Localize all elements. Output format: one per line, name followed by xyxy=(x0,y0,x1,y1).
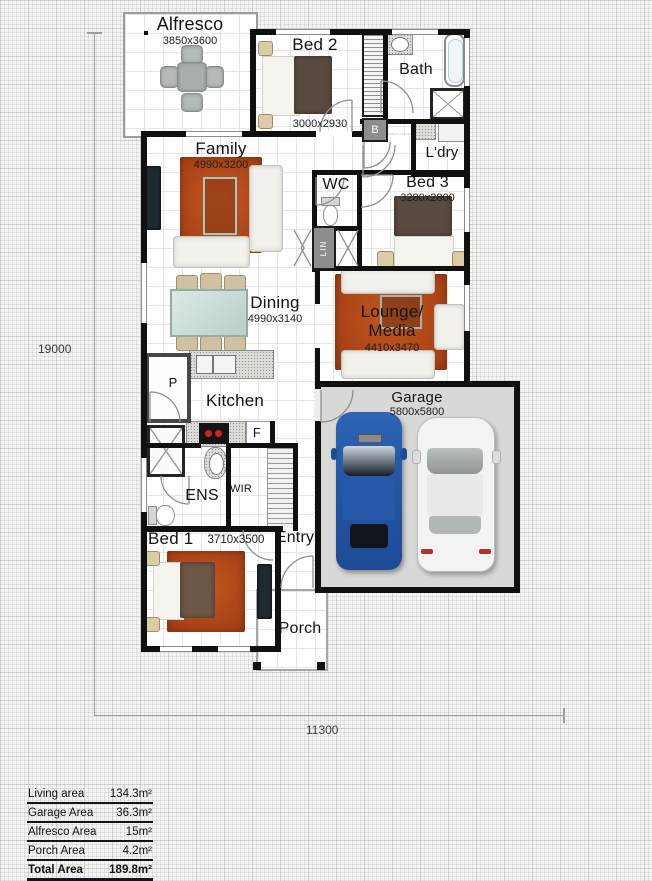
car-white xyxy=(417,417,495,572)
dimension-cap xyxy=(563,708,565,723)
wall xyxy=(315,587,520,593)
area-table-row: Garage Area 36.3m² xyxy=(27,804,153,823)
car-white-taillight xyxy=(479,549,491,554)
wc-label: WC xyxy=(315,177,357,194)
family-sofa xyxy=(249,165,283,252)
porch-post xyxy=(317,662,325,670)
linen-label: LIN xyxy=(319,240,328,255)
bed3-dims: 3280x2800 xyxy=(380,192,475,204)
garage-dims: 5800x5800 xyxy=(355,406,479,418)
window xyxy=(464,285,470,331)
ens-toilet xyxy=(156,505,175,526)
bath-shower xyxy=(430,88,466,120)
dimension-cap xyxy=(87,32,102,34)
area-row-label: Living area xyxy=(28,788,84,800)
broom-cupboard: B xyxy=(362,118,388,142)
cooktop-burner xyxy=(205,430,212,437)
bed3-label: Bed 3 xyxy=(380,175,475,192)
bath-label: Bath xyxy=(385,62,447,79)
wc-toilet xyxy=(323,205,338,226)
car-white-rear-window xyxy=(429,516,481,534)
car-blue-plate xyxy=(358,434,382,443)
wall xyxy=(312,170,362,175)
area-row-label: Garage Area xyxy=(28,807,93,819)
bath-basin xyxy=(391,37,409,52)
wall xyxy=(141,443,201,448)
bed2-label: Bed 2 xyxy=(270,36,360,54)
area-row-value: 15m² xyxy=(126,826,152,838)
car-white-mirror xyxy=(412,450,421,464)
car-blue-windshield xyxy=(343,446,395,476)
lounge-sofa xyxy=(341,350,435,379)
ens-basin xyxy=(209,453,224,475)
broom-cupboard-label: B xyxy=(371,124,378,136)
bed3-side-table xyxy=(377,251,394,267)
dining-label: Dining xyxy=(230,294,320,312)
alfresco-chair xyxy=(205,66,224,88)
ldry-label: L'dry xyxy=(414,145,470,161)
car-blue-engine-cover xyxy=(350,524,388,548)
cooktop xyxy=(199,423,229,444)
car-white-taillight xyxy=(421,549,433,554)
alfresco-dims: 3850x3600 xyxy=(135,35,245,47)
bed2-blanket xyxy=(294,56,332,114)
dining-chair xyxy=(200,273,222,290)
family-tv-unit xyxy=(145,166,161,230)
bed1-label: Bed 1 xyxy=(148,530,204,548)
wall xyxy=(514,381,520,593)
site-width-label: 11300 xyxy=(306,723,338,737)
area-table-total-row: Total Area 189.8m² xyxy=(27,861,153,881)
car-white-roof xyxy=(427,474,483,516)
kitchen-sink xyxy=(213,355,236,374)
pantry-label: P xyxy=(158,376,188,390)
alfresco-chair xyxy=(181,93,203,112)
entry-label: Entry xyxy=(270,530,320,547)
bed2-side-table xyxy=(258,114,273,129)
area-table-row: Porch Area 4.2m² xyxy=(27,842,153,861)
area-table-row: Alfresco Area 15m² xyxy=(27,823,153,842)
area-row-value: 189.8m² xyxy=(109,864,152,876)
wir-shelves xyxy=(267,448,293,528)
garage-label: Garage xyxy=(355,390,479,406)
wir-label: WIR xyxy=(216,484,266,496)
family-coffee-table xyxy=(203,177,237,235)
site-depth-label: 19000 xyxy=(38,342,71,356)
window xyxy=(464,38,470,86)
wall xyxy=(315,381,520,387)
alfresco-table xyxy=(177,62,207,92)
dimension-line-horizontal xyxy=(94,715,564,716)
car-white-mirror xyxy=(492,450,501,464)
lounge-sofa xyxy=(341,268,435,294)
door-opening xyxy=(315,389,321,421)
bed1-dims: 3710x3500 xyxy=(206,534,266,546)
window xyxy=(392,29,438,35)
fridge-label: F xyxy=(242,426,272,440)
washing-machine xyxy=(438,121,466,142)
lounge-label-line1: Lounge/ xyxy=(330,303,454,321)
car-blue xyxy=(336,412,402,570)
wall xyxy=(226,443,298,448)
door-opening xyxy=(316,131,352,137)
alfresco-label: Alfresco xyxy=(135,15,245,34)
area-row-value: 4.2m² xyxy=(123,845,152,857)
kitchen-label: Kitchen xyxy=(185,392,285,410)
bed2-dims: 3000x2930 xyxy=(275,118,365,130)
area-table-row: Living area 134.3m² xyxy=(27,785,153,804)
bed1-blanket xyxy=(180,562,215,618)
linen-cupboard: LIN xyxy=(312,226,336,270)
window xyxy=(160,646,192,652)
family-sofa xyxy=(173,236,250,268)
area-row-value: 36.3m² xyxy=(116,807,152,819)
car-blue-mirror xyxy=(331,448,337,460)
area-row-label: Alfresco Area xyxy=(28,826,96,838)
bathtub-inner xyxy=(448,39,463,83)
floor-plan: LIN B Alfresco 3850x3600 Bed 2 3000x2930… xyxy=(0,0,652,872)
area-row-label: Porch Area xyxy=(28,845,85,857)
wall xyxy=(357,170,362,271)
ens-shower xyxy=(147,425,185,477)
wall xyxy=(293,443,298,531)
cooktop-burner xyxy=(215,430,222,437)
bed1-dresser xyxy=(257,564,272,619)
area-row-label: Total Area xyxy=(28,864,83,876)
porch-post xyxy=(253,662,261,670)
wall xyxy=(250,29,256,137)
porch-label: Porch xyxy=(270,621,330,638)
lounge-dims: 4410x3470 xyxy=(330,342,454,354)
dimension-line-vertical xyxy=(94,32,95,716)
family-dims: 4990x3200 xyxy=(160,159,282,171)
dining-dims: 4990x3140 xyxy=(230,313,320,325)
car-blue-roof xyxy=(343,476,395,520)
window xyxy=(141,263,147,323)
window xyxy=(141,458,147,512)
window xyxy=(218,646,250,652)
wall xyxy=(141,131,147,652)
car-white-windshield xyxy=(427,448,483,474)
family-label: Family xyxy=(160,140,282,158)
window xyxy=(186,131,242,137)
lounge-label-line2: Media xyxy=(330,322,454,340)
kitchen-sink xyxy=(196,355,213,374)
car-blue-mirror xyxy=(401,448,407,460)
area-row-value: 134.3m² xyxy=(110,788,152,800)
area-table: Living area 134.3m² Garage Area 36.3m² A… xyxy=(27,785,153,881)
